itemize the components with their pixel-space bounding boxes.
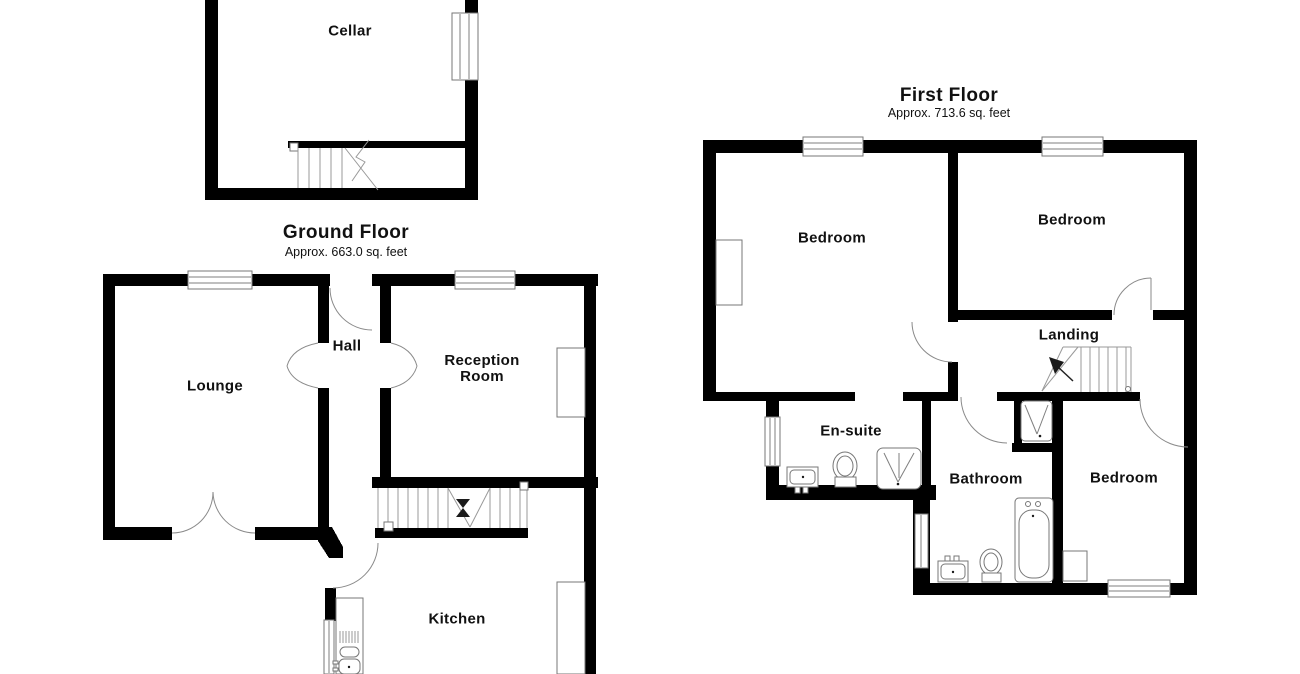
- bedroom2-door-swing: [1114, 278, 1151, 315]
- bathroom-toilet: [980, 549, 1002, 582]
- kitchen-sink-unit: [333, 598, 363, 674]
- first-floor-plan: [703, 137, 1197, 597]
- room-label-reception: Reception Room: [425, 353, 539, 385]
- floorplan-page: Cellar Ground Floor Approx. 663.0 sq. fe…: [0, 0, 1300, 674]
- stairs-direction-arrow: [456, 499, 470, 517]
- reception-chimney-recess: [557, 348, 585, 417]
- room-label-bedroom-2: Bedroom: [1038, 212, 1106, 229]
- front-door-swing: [330, 288, 372, 330]
- lounge-window: [188, 271, 252, 289]
- cellar-window: [452, 13, 478, 80]
- ensuite-shower-tray: [877, 448, 921, 489]
- bedroom2-window: [1042, 137, 1103, 156]
- bathroom-window: [915, 514, 928, 568]
- bedroom3-wardrobe: [1063, 551, 1087, 581]
- landing-staircase: [1042, 347, 1131, 392]
- bedroom1-window: [803, 137, 863, 156]
- room-label-landing: Landing: [1039, 327, 1099, 344]
- first-floor-area: Approx. 713.6 sq. feet: [888, 106, 1010, 120]
- room-label-hall: Hall: [333, 338, 362, 355]
- bedroom1-door-swing: [912, 322, 952, 362]
- french-doors-swing: [172, 492, 255, 533]
- bathtub: [1015, 498, 1053, 582]
- bathroom-door-swing: [961, 397, 1007, 443]
- bathroom-washbasin: [938, 556, 968, 582]
- ensuite-toilet: [833, 452, 857, 487]
- first-floor-title: First Floor: [900, 85, 998, 107]
- ensuite-window: [765, 417, 780, 466]
- kitchen-window: [324, 620, 334, 674]
- stairs-direction-arrow: [1058, 367, 1073, 381]
- floorplan-drawing: [0, 0, 1300, 674]
- ground-floor-area: Approx. 663.0 sq. feet: [285, 245, 407, 259]
- room-label-bathroom: Bathroom: [949, 471, 1022, 488]
- room-label-cellar: Cellar: [328, 23, 372, 40]
- bedroom3-window: [1108, 580, 1170, 597]
- room-label-bedroom-1: Bedroom: [798, 230, 866, 247]
- bathroom-shower-tray: [1021, 401, 1052, 441]
- reception-window: [455, 271, 515, 289]
- kitchen-worktop: [557, 582, 585, 674]
- room-label-kitchen: Kitchen: [428, 611, 485, 628]
- reception-archway: [391, 343, 417, 388]
- ground-floor-title: Ground Floor: [283, 222, 409, 244]
- bedroom1-wardrobe: [716, 240, 742, 305]
- bedroom3-door-swing: [1140, 399, 1188, 447]
- room-label-ensuite: En-suite: [820, 423, 882, 440]
- first-walls: [703, 140, 1197, 595]
- room-label-bedroom-3: Bedroom: [1090, 470, 1158, 487]
- lounge-archway: [287, 343, 318, 388]
- room-label-lounge: Lounge: [187, 378, 243, 395]
- ground-staircase: [378, 482, 528, 531]
- cellar-newel: [290, 143, 298, 151]
- ground-floor-plan: [103, 271, 598, 674]
